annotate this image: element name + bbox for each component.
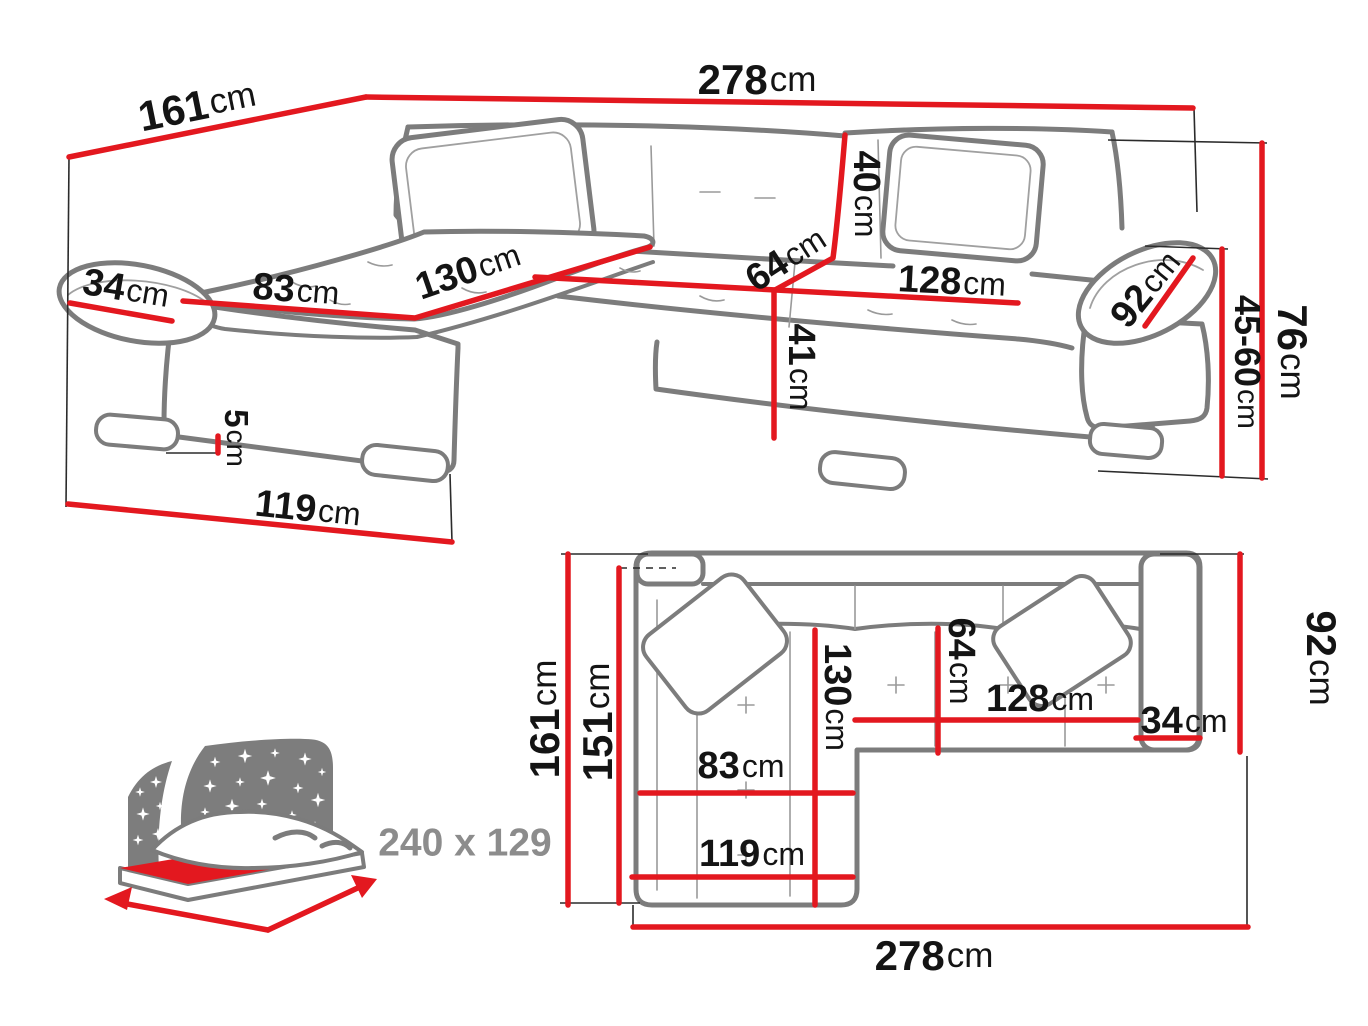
ext-76-bottom-tick [1098,471,1268,479]
dim-label-40-persp: 40cm [845,151,887,238]
sofa-dimensions-diagram: 161cm 278cm 34cm 83cm 130cm 64cm 40cm 12… [0,0,1368,1026]
perspective-view: 161cm 278cm 34cm 83cm 130cm 64cm 40cm 12… [52,56,1316,543]
dim-line-278-persp [366,97,1193,108]
dim-label-161-plan: 161cm [521,660,568,779]
ext-left-vertical [66,157,69,507]
leg-chaise-right [361,444,450,483]
dim-label-5-persp: 5cm [219,409,256,467]
plan-left-arm [637,554,703,584]
sofa-bed-night-icon: 240 x 129 [104,739,552,930]
dim-label-34-plan: 34cm [1141,700,1228,742]
dim-label-151-plan: 151cm [574,663,621,782]
dim-label-64-plan: 64cm [940,618,982,705]
pillow-right [881,134,1045,263]
arrow-side [268,885,364,930]
dim-label-278-plan: 278cm [875,932,994,979]
dim-label-128-plan: 128cm [986,678,1094,720]
dim-label-128-persp: 128cm [897,258,1007,306]
leg-right-arm [1089,423,1163,459]
dim-label-76-persp: 76cm [1270,304,1317,399]
ext-278-end [1194,108,1197,212]
dim-label-4560-persp: 45-60cm [1228,295,1269,429]
dim-label-278-persp: 278cm [698,56,817,103]
arrow-front [122,903,268,930]
backrest-right-edge [1112,132,1122,228]
dim-label-119-plan: 119cm [699,833,805,875]
plan-view: 161cm 151cm 92cm 64cm 130cm 128cm 34cm 8… [521,553,1346,979]
dim-label-83-plan: 83cm [698,745,785,787]
main-base [655,342,1154,442]
ext-119-end [450,474,452,542]
ext-76-top-tick [1108,140,1267,143]
leg-front-left [95,413,179,450]
dim-label-119-persp: 119cm [253,483,363,536]
leg-main [819,451,907,491]
sleeping-area-label: 240 x 129 [378,822,552,865]
dim-label-130-plan: 130cm [816,643,858,751]
dim-label-41-persp: 41cm [780,324,822,411]
dim-label-92-plan: 92cm [1299,610,1346,705]
